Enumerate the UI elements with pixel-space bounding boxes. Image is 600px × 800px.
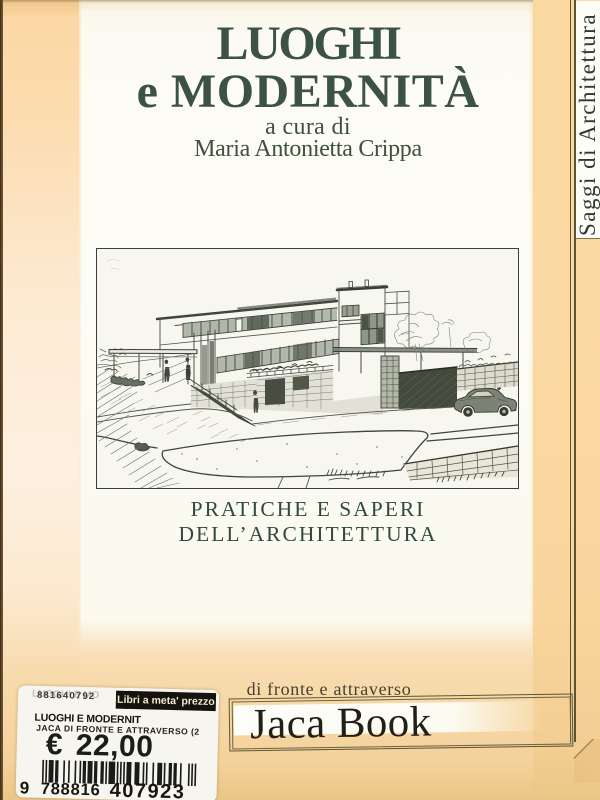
svg-text:9: 9: [20, 778, 30, 797]
svg-text:407923: 407923: [109, 780, 185, 800]
svg-text:788816: 788816: [41, 780, 101, 799]
